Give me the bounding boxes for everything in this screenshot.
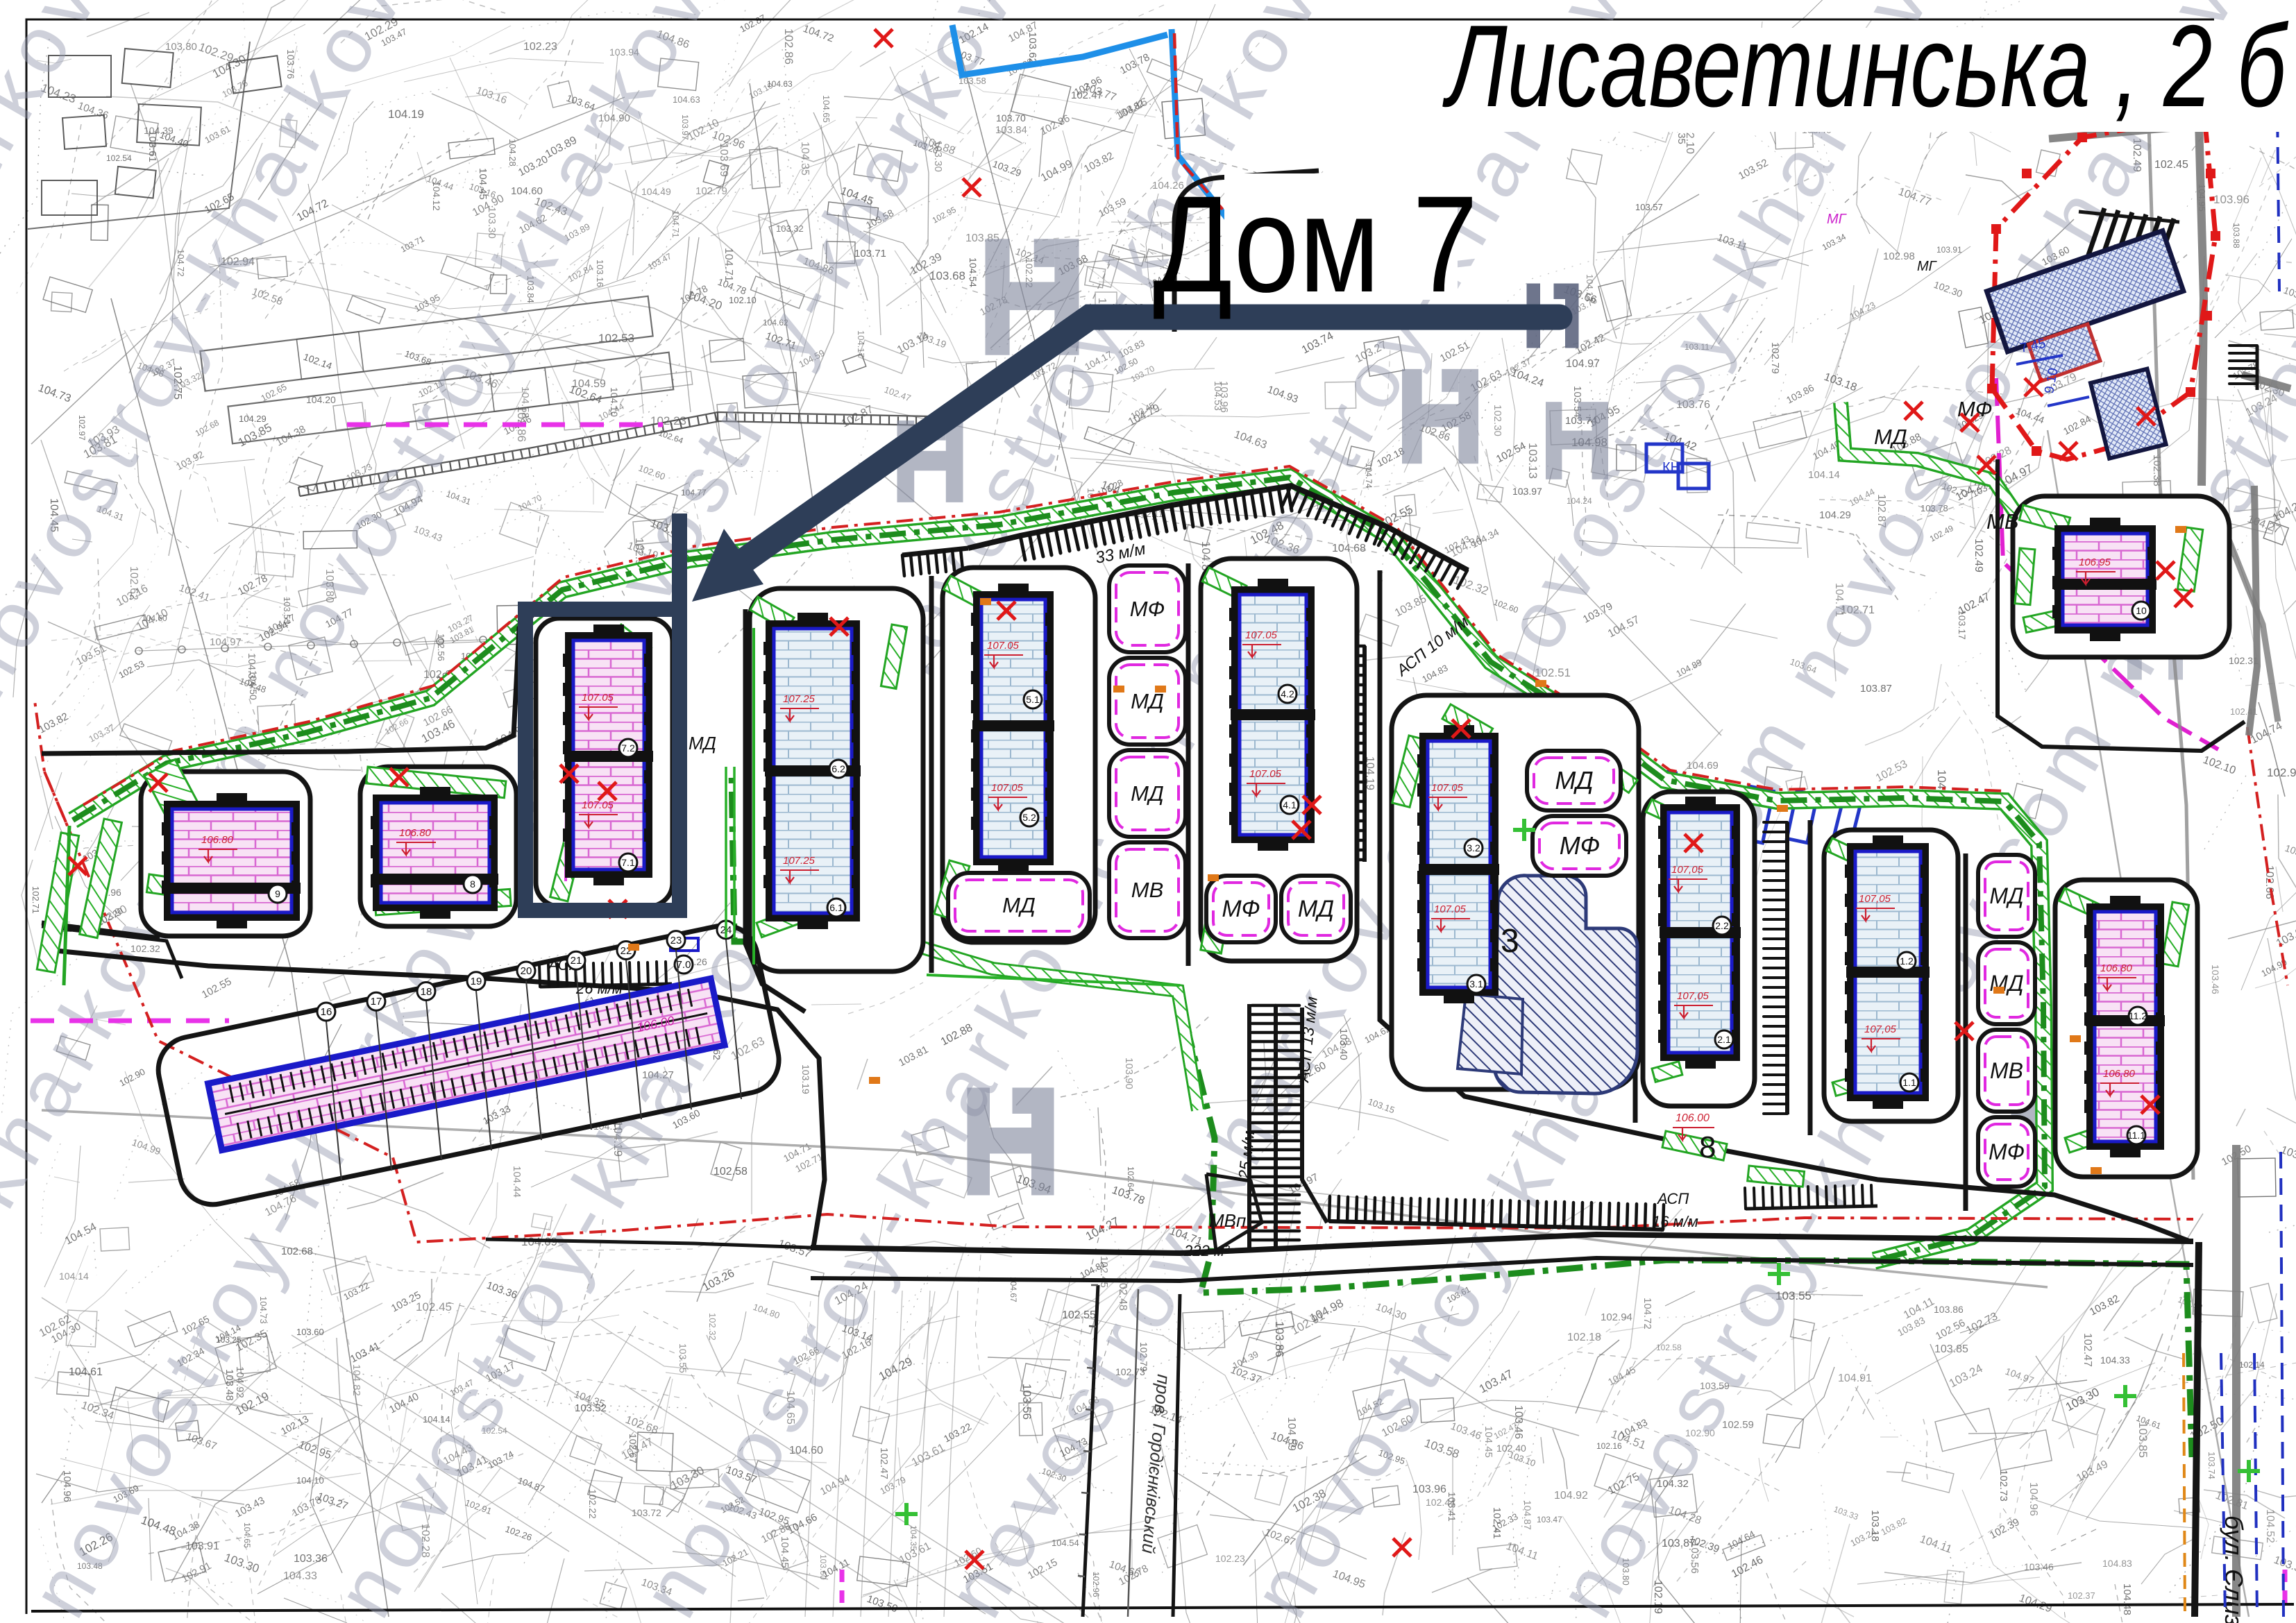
svg-text:104.63: 104.63 <box>767 79 793 89</box>
svg-text:102.22: 102.22 <box>587 1489 598 1519</box>
svg-text:МГ: МГ <box>1827 212 1848 227</box>
svg-text:106.00: 106.00 <box>1675 1112 1710 1124</box>
svg-text:103.19: 103.19 <box>800 1064 811 1094</box>
svg-text:3.2: 3.2 <box>1467 842 1480 853</box>
svg-text:3.1: 3.1 <box>1469 978 1483 989</box>
svg-text:104.53: 104.53 <box>1213 381 1224 411</box>
svg-text:107.05: 107.05 <box>991 782 1024 794</box>
svg-text:102.14: 102.14 <box>2239 1360 2265 1370</box>
svg-text:102.98: 102.98 <box>1883 250 1915 262</box>
svg-text:107.05: 107.05 <box>582 692 614 704</box>
svg-text:8: 8 <box>1699 1130 1716 1164</box>
svg-text:104.72: 104.72 <box>1641 1298 1653 1329</box>
svg-text:107.05: 107.05 <box>1431 782 1464 794</box>
svg-text:104.61: 104.61 <box>69 1366 103 1378</box>
svg-text:МФ: МФ <box>1560 831 1601 860</box>
svg-text:102.45: 102.45 <box>416 1300 452 1314</box>
svg-text:103.36: 103.36 <box>294 1553 328 1565</box>
svg-text:16: 16 <box>321 1006 332 1018</box>
svg-text:1.1: 1.1 <box>1902 1077 1916 1088</box>
svg-text:АСП: АСП <box>1656 1190 1689 1207</box>
svg-text:106.80: 106.80 <box>2100 962 2133 974</box>
svg-text:Лисаветинська , 2 б: Лисаветинська , 2 б <box>1442 1 2288 132</box>
svg-text:104.63: 104.63 <box>673 94 700 105</box>
svg-text:104.54: 104.54 <box>968 257 979 287</box>
svg-text:103.55: 103.55 <box>677 1343 689 1373</box>
svg-text:102.79: 102.79 <box>1769 342 1781 374</box>
svg-text:104.87: 104.87 <box>1522 1500 1533 1530</box>
svg-text:103.88: 103.88 <box>2231 223 2241 248</box>
svg-text:107,05: 107,05 <box>1859 893 1891 905</box>
svg-text:МФ: МФ <box>1222 896 1260 922</box>
svg-text:МФ: МФ <box>1989 1139 2025 1164</box>
svg-text:5.1: 5.1 <box>1026 694 1040 705</box>
svg-text:102.37: 102.37 <box>2068 1590 2095 1601</box>
svg-text:МД: МД <box>1131 781 1164 806</box>
svg-text:16 м/м: 16 м/м <box>1652 1213 1698 1230</box>
svg-text:103.68: 103.68 <box>929 269 965 282</box>
svg-text:КН: КН <box>1662 460 1680 475</box>
svg-text:107,05: 107,05 <box>1864 1023 1897 1035</box>
svg-text:103.46: 103.46 <box>2210 965 2221 994</box>
svg-text:102.86: 102.86 <box>782 28 795 65</box>
svg-text:МВ: МВ <box>1131 878 1164 902</box>
svg-text:104.71: 104.71 <box>670 210 681 238</box>
svg-text:102.47: 102.47 <box>878 1447 890 1479</box>
svg-text:104.58: 104.58 <box>519 386 531 418</box>
svg-text:104.29: 104.29 <box>239 414 267 424</box>
svg-text:107,05: 107,05 <box>1677 990 1710 1002</box>
svg-text:МВ: МВ <box>1986 509 2019 534</box>
svg-text:102.23: 102.23 <box>523 41 557 53</box>
svg-text:102.49: 102.49 <box>1973 538 1984 572</box>
svg-text:104.71: 104.71 <box>723 248 734 282</box>
svg-text:103.72: 103.72 <box>632 1507 661 1518</box>
svg-text:104.82: 104.82 <box>351 1364 362 1396</box>
svg-text:104.97: 104.97 <box>210 636 242 648</box>
svg-text:102.58: 102.58 <box>714 1166 748 1178</box>
svg-text:19: 19 <box>471 976 482 987</box>
svg-text:104.65: 104.65 <box>242 1522 252 1548</box>
svg-text:103.84: 103.84 <box>995 124 1027 136</box>
svg-text:104.65: 104.65 <box>821 95 832 123</box>
svg-text:102.16: 102.16 <box>1596 1441 1622 1451</box>
svg-text:102.73: 102.73 <box>1998 1470 2009 1502</box>
svg-text:107.05: 107.05 <box>1434 903 1467 915</box>
svg-text:103.56: 103.56 <box>1689 1542 1700 1574</box>
svg-text:103.41: 103.41 <box>1446 1492 1458 1522</box>
svg-text:103.91: 103.91 <box>185 1540 219 1552</box>
svg-text:104.33: 104.33 <box>2100 1354 2130 1366</box>
svg-text:103.57: 103.57 <box>1635 202 1663 212</box>
svg-text:17: 17 <box>371 996 382 1008</box>
svg-text:104.97: 104.97 <box>1566 358 1600 370</box>
svg-text:5.2: 5.2 <box>1022 812 1036 823</box>
svg-text:104.48: 104.48 <box>2121 1583 2133 1615</box>
svg-text:107.25: 107.25 <box>783 855 816 867</box>
svg-text:104.52: 104.52 <box>2264 1509 2276 1543</box>
svg-text:104.29: 104.29 <box>1819 509 1851 521</box>
svg-text:103.97: 103.97 <box>1512 486 1542 497</box>
svg-text:МВп: МВп <box>1209 1210 1246 1231</box>
svg-text:8: 8 <box>470 878 475 890</box>
svg-text:6.2: 6.2 <box>832 763 845 774</box>
svg-text:102.94: 102.94 <box>1601 1311 1632 1323</box>
svg-text:6.1: 6.1 <box>829 902 843 913</box>
svg-text:МД: МД <box>1131 689 1164 713</box>
svg-text:104.35: 104.35 <box>799 142 811 176</box>
svg-text:104.33: 104.33 <box>283 1570 317 1582</box>
svg-text:МФ: МФ <box>1130 597 1165 621</box>
svg-text:18: 18 <box>421 986 432 998</box>
svg-text:102.47: 102.47 <box>2082 1333 2093 1367</box>
svg-text:МД: МД <box>1874 425 1907 449</box>
svg-text:МД: МД <box>1555 766 1593 794</box>
svg-text:10: 10 <box>2136 605 2147 616</box>
svg-text:Дом 7: Дом 7 <box>1153 168 1478 321</box>
svg-text:102.30: 102.30 <box>1492 405 1503 436</box>
svg-text:104.10: 104.10 <box>296 1475 324 1486</box>
svg-text:МВ: МВ <box>1990 1058 2023 1083</box>
svg-text:103.87: 103.87 <box>1860 683 1892 695</box>
svg-text:21: 21 <box>571 955 582 967</box>
svg-text:103.85: 103.85 <box>1934 1343 1968 1355</box>
svg-text:107.25: 107.25 <box>783 693 816 705</box>
svg-text:1.2: 1.2 <box>1900 955 1914 967</box>
svg-text:4.1: 4.1 <box>1283 799 1297 810</box>
svg-text:103.46: 103.46 <box>2024 1561 2054 1572</box>
svg-text:102.23: 102.23 <box>1215 1553 1245 1564</box>
svg-text:103.46: 103.46 <box>1512 1405 1524 1439</box>
svg-text:103.86: 103.86 <box>1934 1304 1964 1315</box>
svg-text:107.05: 107.05 <box>1245 629 1278 641</box>
svg-text:2.2: 2.2 <box>1715 920 1729 931</box>
svg-text:104.19: 104.19 <box>388 108 424 121</box>
svg-text:106.80: 106.80 <box>399 827 432 839</box>
svg-text:103.96: 103.96 <box>1412 1484 1446 1495</box>
svg-text:104.96: 104.96 <box>2027 1482 2039 1516</box>
svg-text:7.0: 7.0 <box>677 959 691 971</box>
svg-text:102.96: 102.96 <box>1091 1572 1101 1597</box>
svg-text:104.45: 104.45 <box>477 168 489 200</box>
svg-text:102.10: 102.10 <box>729 295 757 305</box>
svg-text:103.60: 103.60 <box>296 1327 324 1337</box>
svg-text:107.05: 107.05 <box>1249 768 1282 780</box>
svg-text:23: 23 <box>670 935 682 946</box>
svg-text:102.19: 102.19 <box>1652 1580 1664 1614</box>
svg-text:102.99: 102.99 <box>2267 766 2296 779</box>
svg-text:102.54: 102.54 <box>106 153 132 163</box>
svg-text:103.91: 103.91 <box>1936 245 1962 255</box>
svg-text:МД: МД <box>689 733 716 754</box>
svg-text:7.1: 7.1 <box>621 857 635 868</box>
svg-text:104.14: 104.14 <box>1808 469 1840 481</box>
svg-text:222 м²: 222 м² <box>1183 1242 1230 1259</box>
svg-text:104.44: 104.44 <box>511 1166 523 1198</box>
svg-text:107,05: 107,05 <box>1671 864 1704 876</box>
svg-text:7.2: 7.2 <box>621 742 635 754</box>
svg-text:102.18: 102.18 <box>1567 1332 1601 1343</box>
svg-text:103.80: 103.80 <box>165 41 197 53</box>
svg-text:107.05: 107.05 <box>987 640 1020 652</box>
svg-text:103.85: 103.85 <box>2136 1422 2150 1458</box>
svg-text:104.17: 104.17 <box>856 330 866 358</box>
svg-text:104.45: 104.45 <box>1483 1426 1494 1458</box>
svg-text:2.1: 2.1 <box>1717 1034 1731 1045</box>
svg-text:106.80: 106.80 <box>201 834 234 846</box>
svg-text:104.39: 104.39 <box>144 125 174 136</box>
svg-text:11.2: 11.2 <box>2129 1010 2147 1021</box>
svg-text:103.70: 103.70 <box>996 112 1026 124</box>
svg-text:МД: МД <box>1002 893 1036 917</box>
svg-text:106.80: 106.80 <box>2103 1068 2136 1080</box>
svg-text:МД: МД <box>1298 896 1334 922</box>
svg-text:103.74: 103.74 <box>2206 1452 2217 1479</box>
svg-text:102.79: 102.79 <box>695 185 727 197</box>
svg-text:103.13: 103.13 <box>1526 443 1539 479</box>
svg-text:102.71: 102.71 <box>31 886 41 914</box>
svg-text:104.83: 104.83 <box>2102 1558 2132 1569</box>
svg-text:103.97: 103.97 <box>680 114 690 140</box>
svg-text:102.32: 102.32 <box>707 1313 718 1341</box>
svg-text:103.16: 103.16 <box>595 260 605 287</box>
svg-text:107.05: 107.05 <box>582 799 614 811</box>
svg-text:103.69: 103.69 <box>718 143 729 177</box>
svg-text:104.28: 104.28 <box>507 139 518 167</box>
svg-text:104.91: 104.91 <box>1838 1373 1872 1384</box>
svg-text:104.49: 104.49 <box>641 186 671 197</box>
svg-text:104.92: 104.92 <box>1554 1490 1588 1502</box>
svg-text:104.45: 104.45 <box>779 1536 791 1568</box>
svg-text:МГ: МГ <box>1917 259 1938 274</box>
svg-text:3: 3 <box>1501 923 1519 960</box>
svg-text:9: 9 <box>275 888 280 899</box>
svg-text:26 м/м: 26 м/м <box>575 980 623 997</box>
svg-text:104.14: 104.14 <box>59 1271 89 1282</box>
svg-text:106.95: 106.95 <box>2079 556 2111 568</box>
svg-text:11.1: 11.1 <box>2127 1130 2145 1141</box>
svg-text:20: 20 <box>521 965 532 977</box>
svg-text:103.47: 103.47 <box>1537 1515 1562 1524</box>
svg-text:104.60: 104.60 <box>142 613 167 623</box>
svg-text:4.2: 4.2 <box>1281 688 1294 699</box>
svg-text:104.10: 104.10 <box>609 387 620 417</box>
svg-text:103.90: 103.90 <box>1123 1057 1135 1089</box>
svg-text:МД: МД <box>1989 883 2023 908</box>
